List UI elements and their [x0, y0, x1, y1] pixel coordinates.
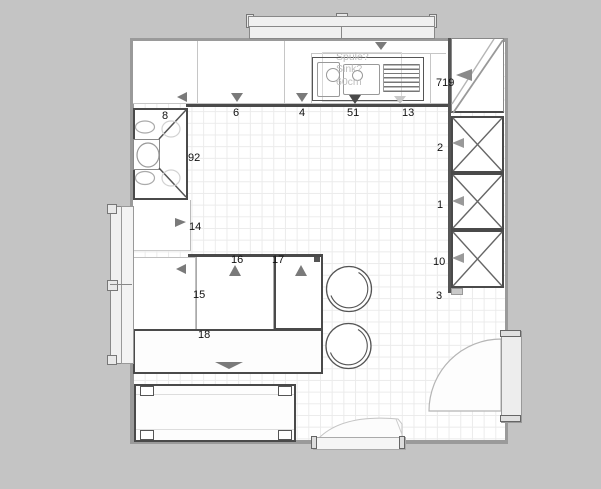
sink-note-line2: Sink?	[336, 63, 362, 75]
dining-table[interactable]	[134, 384, 296, 442]
right-door-cap-bottom	[500, 415, 521, 422]
unit-label-17: 17	[272, 254, 284, 266]
left-window-inner[interactable]	[121, 206, 134, 364]
unit-label-3: 3	[436, 290, 442, 302]
tall-cabinet-10[interactable]	[451, 230, 504, 288]
right-door-leaf[interactable]	[501, 331, 522, 423]
floorplan-canvas: Spüle? Sink? 60cm	[0, 0, 601, 489]
unit-label-719: 719	[436, 77, 454, 89]
left-window-mid-tick	[110, 284, 132, 285]
unit-label-14: 14	[189, 221, 201, 233]
table-inner-line-bottom	[136, 429, 294, 430]
table-leg-tl	[140, 386, 154, 396]
top-window-sill[interactable]	[249, 26, 435, 39]
left-window-handle-top	[107, 204, 117, 214]
left-window-handle-mid	[107, 280, 118, 291]
left-counter-strip[interactable]	[133, 200, 191, 251]
sink-note-line1: Spüle?	[336, 51, 369, 63]
unit-label-8: 8	[162, 110, 168, 122]
unit-label-92: 92	[188, 152, 200, 164]
right-door-cap-top	[500, 330, 521, 337]
unit-label-13: 13	[402, 107, 414, 119]
island-top-edge	[188, 254, 323, 257]
left-window-handle-bottom	[107, 355, 117, 365]
tall-cabinet-1[interactable]	[451, 173, 504, 230]
table-leg-br	[278, 430, 292, 440]
table-inner-line-top	[136, 394, 294, 395]
island-section-17[interactable]	[274, 255, 323, 330]
bottom-door-cap-right	[399, 436, 405, 449]
unit-label-2: 2	[437, 142, 443, 154]
cabinet-divider-2	[284, 41, 285, 103]
wall-right-upper	[505, 38, 509, 337]
sink-drainer	[383, 64, 420, 92]
bottom-door-leaf[interactable]	[313, 437, 406, 450]
corner-carousel-inner-box	[133, 139, 160, 170]
unit-label-18: 18	[198, 329, 210, 341]
island-section-15[interactable]	[133, 257, 196, 330]
table-leg-bl	[140, 430, 154, 440]
unit-label-1: 1	[437, 199, 443, 211]
island-counter-18[interactable]	[133, 329, 323, 374]
island-corner-dot	[314, 257, 320, 262]
wall-bottom-right	[404, 440, 508, 444]
island-section-16[interactable]	[196, 255, 274, 330]
unit-label-4: 4	[299, 107, 305, 119]
unit-label-15: 15	[193, 289, 205, 301]
bottom-door-cap-left	[311, 436, 317, 449]
tall-column-end-tick	[451, 288, 463, 295]
cabinet-divider-1	[197, 41, 198, 103]
unit-label-51: 51	[347, 107, 359, 119]
unit-label-6: 6	[233, 107, 239, 119]
unit-label-16: 16	[231, 254, 243, 266]
cabinet-divider-4	[430, 54, 431, 103]
unit-label-10: 10	[433, 256, 445, 268]
tall-cabinet-2[interactable]	[451, 116, 504, 173]
table-leg-tr	[278, 386, 292, 396]
tall-cabinet-719[interactable]	[451, 38, 504, 113]
top-window-divider	[341, 26, 342, 38]
sink-note-line3: 60cm	[336, 76, 362, 88]
